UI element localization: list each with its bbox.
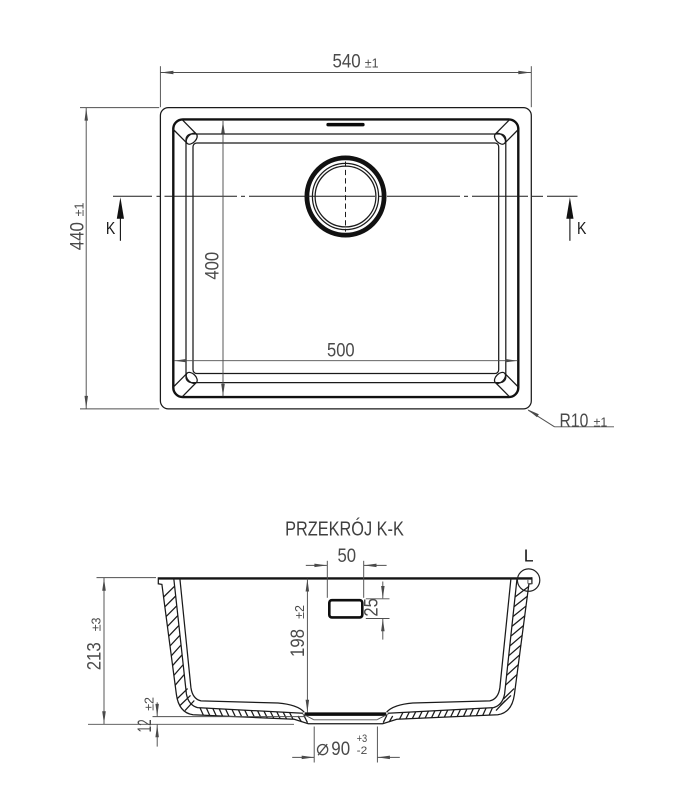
svg-text:±1: ±1 (594, 416, 608, 430)
svg-text:±2: ±2 (143, 697, 157, 711)
svg-text:±2: ±2 (293, 605, 307, 619)
svg-text:198: 198 (287, 629, 309, 657)
svg-text:K: K (106, 218, 116, 238)
svg-text:440: 440 (66, 222, 88, 250)
svg-text:±1: ±1 (365, 57, 379, 71)
svg-text:+3: +3 (357, 733, 368, 745)
svg-text:400: 400 (202, 252, 224, 280)
svg-text:R10: R10 (560, 410, 589, 432)
svg-text:L: L (524, 546, 534, 566)
svg-text:±3: ±3 (90, 617, 104, 631)
svg-text:500: 500 (327, 339, 355, 361)
svg-text:213: 213 (84, 642, 106, 670)
svg-text:±1: ±1 (72, 203, 86, 217)
svg-text:25: 25 (360, 598, 382, 617)
svg-text:K: K (577, 218, 587, 238)
svg-text:12: 12 (134, 719, 156, 732)
svg-text:PRZEKRÓJ K-K: PRZEKRÓJ K-K (285, 517, 404, 540)
svg-text:90: 90 (331, 738, 350, 760)
svg-text:50: 50 (338, 545, 357, 567)
svg-text:540: 540 (333, 51, 361, 73)
svg-text:-2: -2 (357, 745, 368, 757)
